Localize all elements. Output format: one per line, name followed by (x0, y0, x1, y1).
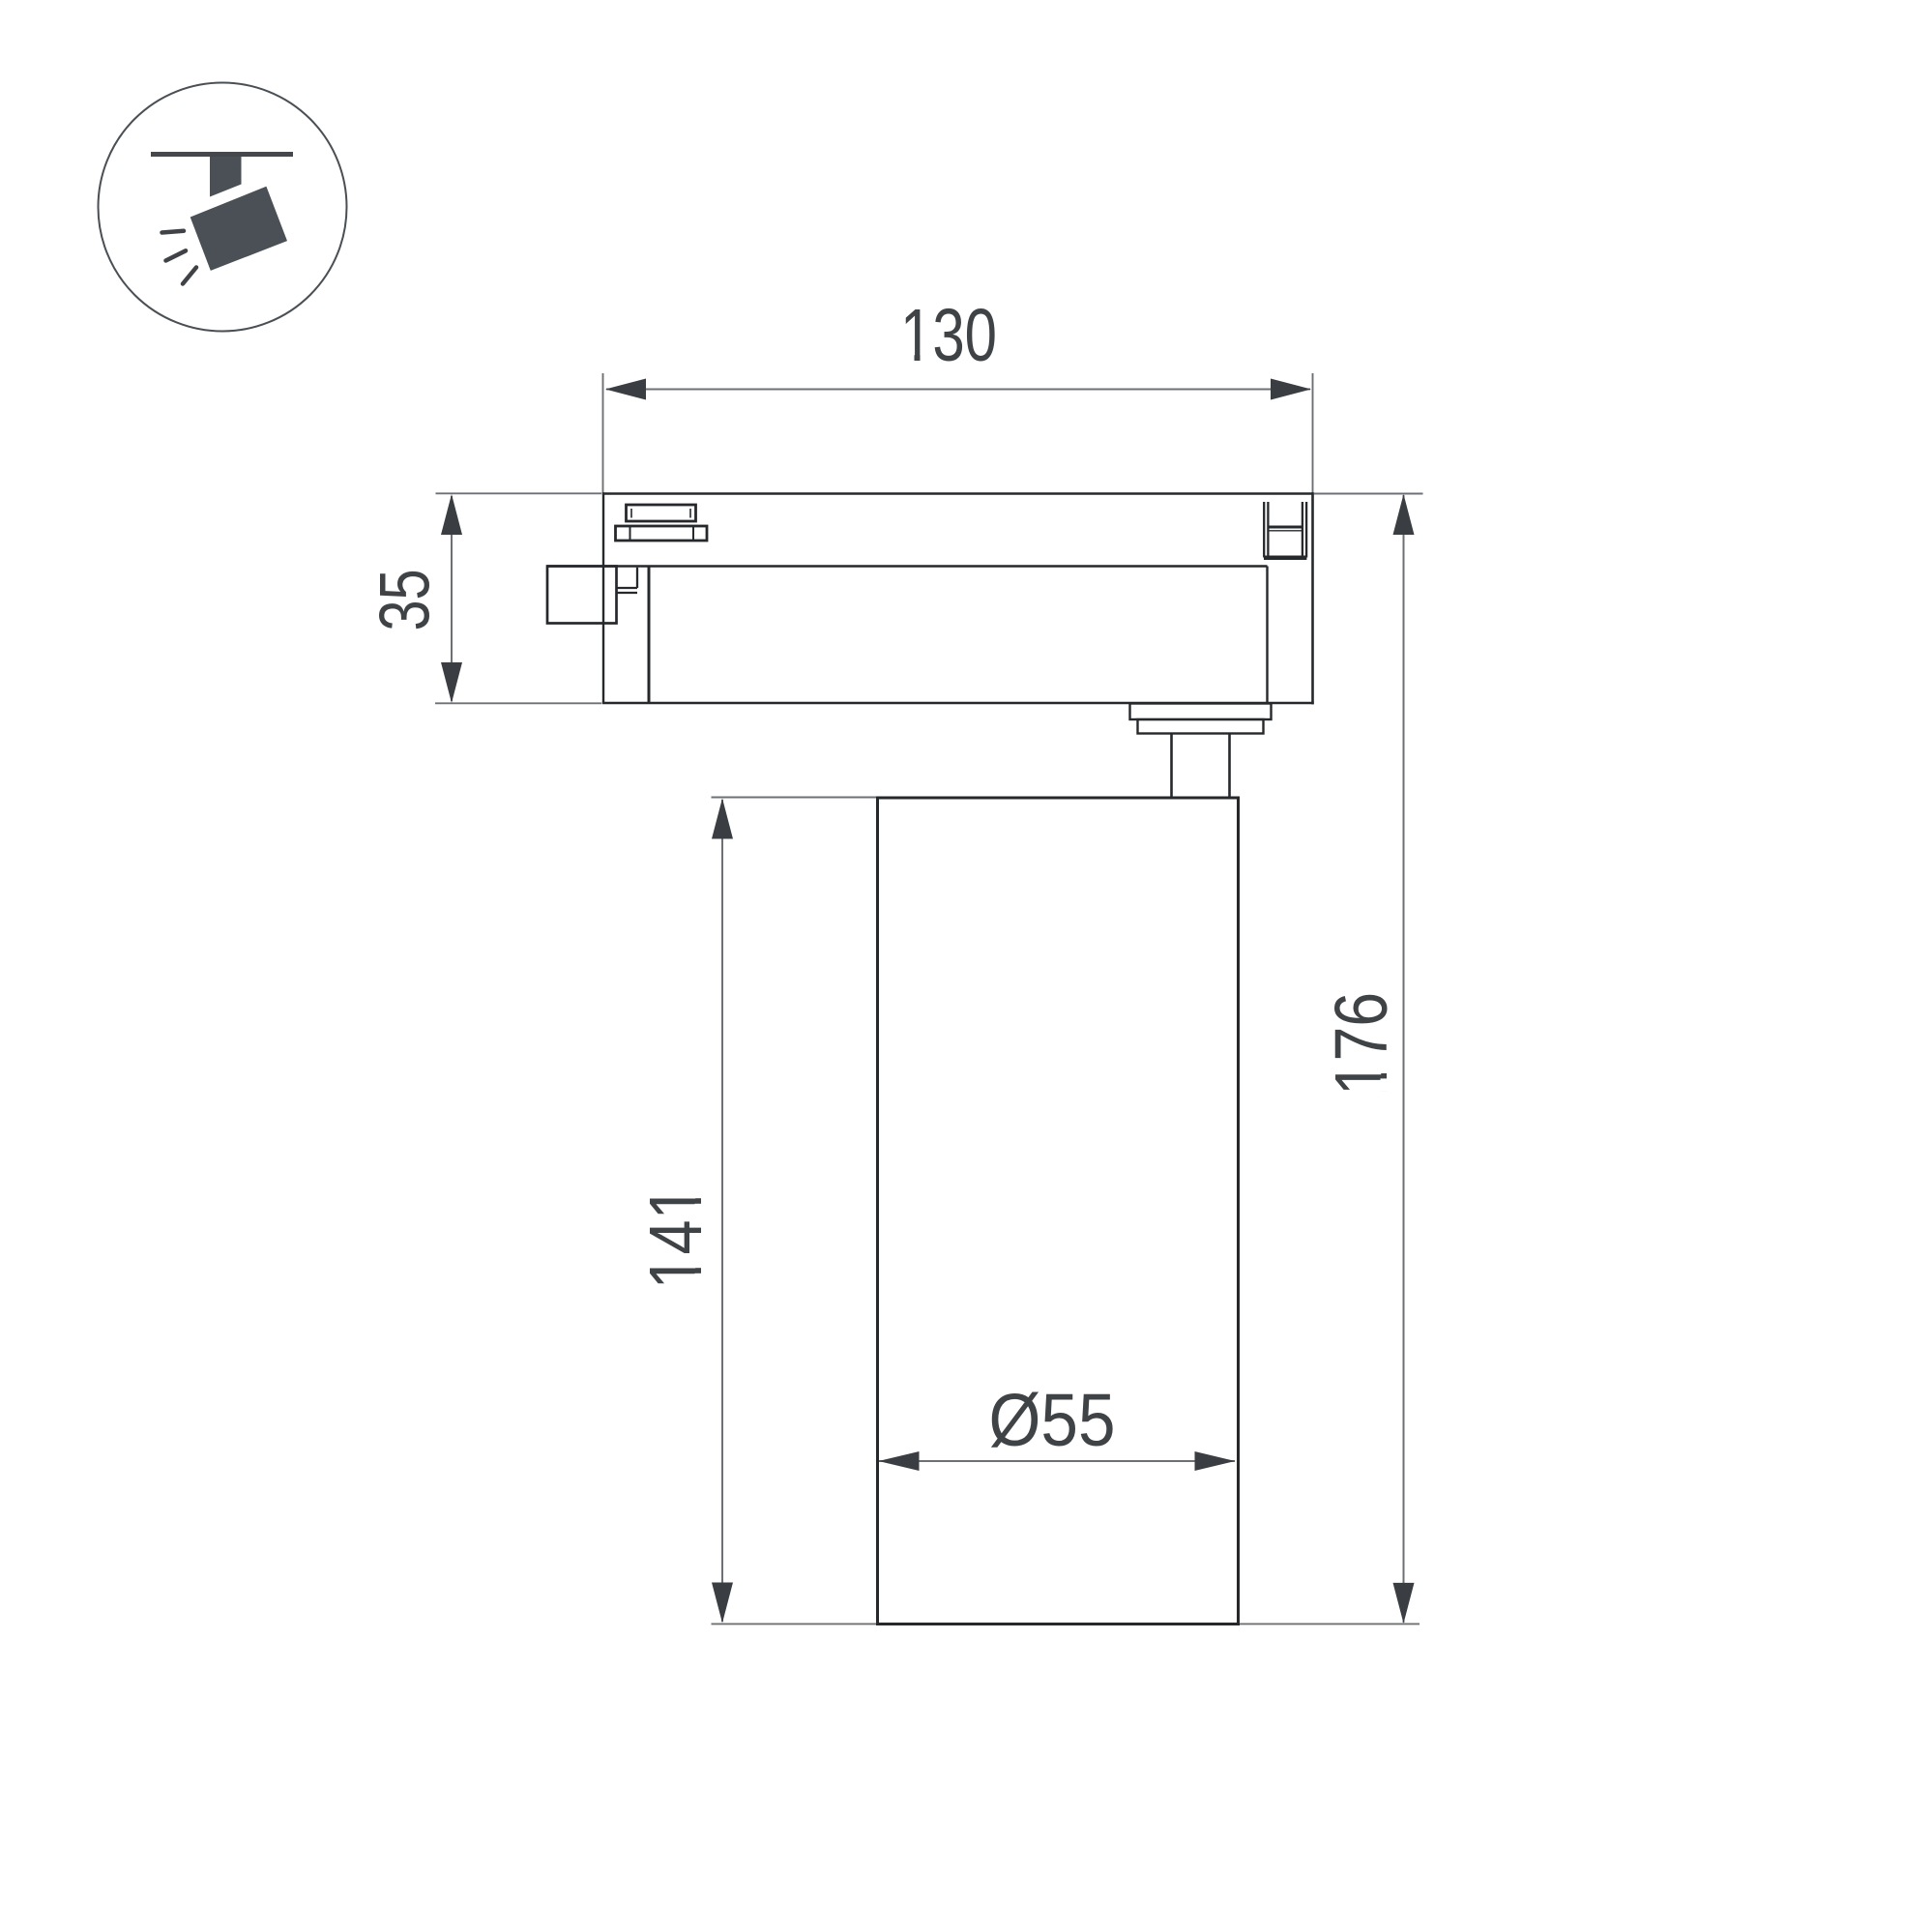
svg-text:176: 176 (1320, 992, 1403, 1096)
svg-text:141: 141 (634, 1186, 717, 1290)
svg-text:130: 130 (900, 294, 997, 377)
svg-text:Ø55: Ø55 (989, 1379, 1116, 1462)
svg-text:35: 35 (366, 570, 445, 631)
